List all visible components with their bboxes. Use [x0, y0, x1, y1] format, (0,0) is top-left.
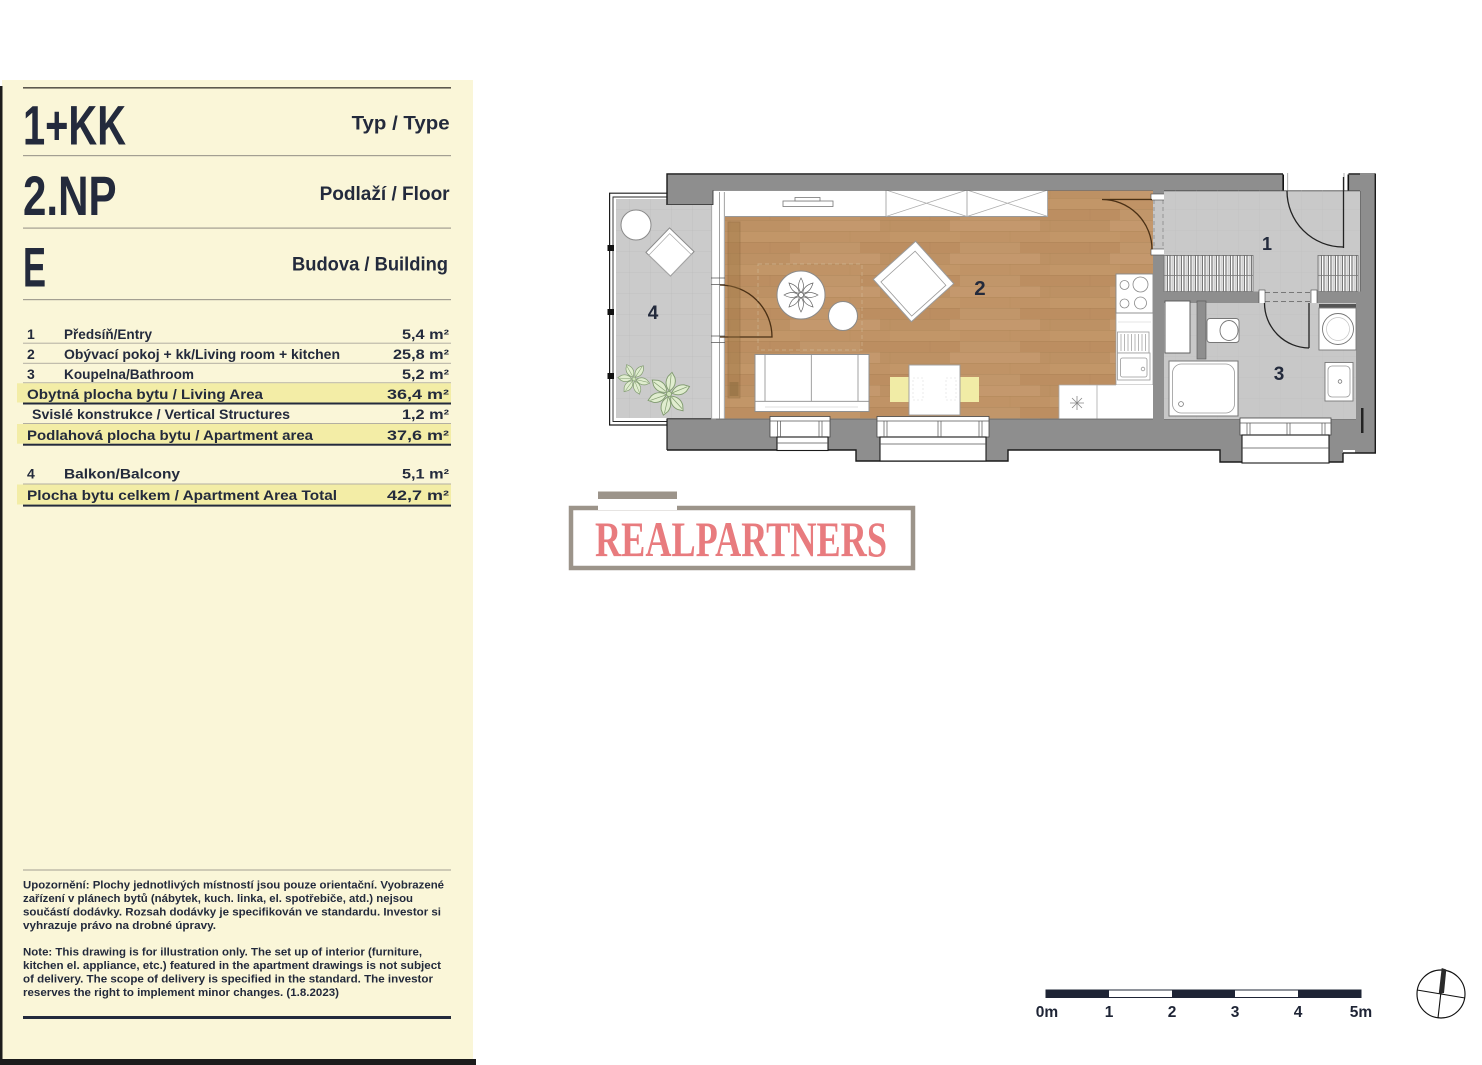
svg-text:1: 1	[1105, 1004, 1114, 1021]
svg-text:5m: 5m	[1350, 1004, 1372, 1021]
svg-text:Koupelna/Bathroom: Koupelna/Bathroom	[64, 366, 194, 382]
svg-text:36,4 m²: 36,4 m²	[387, 386, 449, 402]
svg-text:3: 3	[1231, 1004, 1240, 1021]
svg-text:2: 2	[27, 346, 35, 362]
svg-text:Podlahová plocha bytu / Apartm: Podlahová plocha bytu / Apartment area	[27, 427, 313, 443]
svg-text:4: 4	[648, 303, 659, 324]
svg-text:4: 4	[27, 466, 35, 482]
svg-text:Předsíň/Entry: Předsíň/Entry	[64, 326, 152, 342]
svg-text:reserves the right to implemen: reserves the right to implement minor ch…	[23, 987, 339, 999]
svg-text:Obývací pokoj + kk/Living room: Obývací pokoj + kk/Living room + kitchen	[64, 346, 340, 362]
svg-text:1+KK: 1+KK	[23, 95, 126, 157]
svg-text:42,7 m²: 42,7 m²	[387, 487, 449, 503]
svg-text:zařízení v plánech bytů (náby: zařízení v plánech bytů (nábytek, kuch. …	[23, 893, 413, 905]
svg-text:Obytná plocha bytu / Living Ar: Obytná plocha bytu / Living Area	[27, 386, 263, 402]
svg-text:Note: This drawing is for illu: Note: This drawing is for illustration o…	[23, 947, 422, 959]
svg-text:vyhrazuje právo na drobné úpra: vyhrazuje právo na drobné úpravy.	[23, 920, 216, 932]
svg-text:25,8 m²: 25,8 m²	[393, 346, 449, 362]
svg-text:5,4 m²: 5,4 m²	[402, 326, 449, 342]
svg-text:1,2 m²: 1,2 m²	[402, 406, 449, 422]
svg-text:Upozornění: Plochy jednotlivýc: Upozornění: Plochy jednotlivých místnost…	[23, 880, 444, 892]
svg-text:Typ / Type: Typ / Type	[352, 114, 450, 135]
svg-text:REALPARTNERS: REALPARTNERS	[595, 511, 887, 567]
svg-text:0m: 0m	[1036, 1004, 1058, 1021]
svg-text:4: 4	[1294, 1004, 1303, 1021]
svg-text:součástí dodávky. Rozsah dodáv: součástí dodávky. Rozsah dodávky je spec…	[23, 907, 441, 919]
svg-text:Podlaží / Floor: Podlaží / Floor	[320, 184, 450, 205]
svg-text:5,1 m²: 5,1 m²	[402, 466, 449, 482]
svg-text:5,2 m²: 5,2 m²	[402, 366, 449, 382]
svg-text:1: 1	[27, 326, 35, 342]
svg-text:Budova / Building: Budova / Building	[292, 255, 448, 276]
svg-text:3: 3	[27, 366, 35, 382]
svg-text:37,6 m²: 37,6 m²	[387, 427, 449, 443]
svg-text:2: 2	[974, 277, 985, 300]
svg-text:Svislé konstrukce / Vertical S: Svislé konstrukce / Vertical Structures	[32, 406, 290, 422]
svg-text:Balkon/Balcony: Balkon/Balcony	[64, 466, 180, 482]
svg-text:1: 1	[1262, 234, 1272, 254]
svg-text:Plocha bytu celkem / Apartment: Plocha bytu celkem / Apartment Area Tota…	[27, 487, 337, 503]
svg-text:3: 3	[1274, 364, 1285, 385]
svg-text:2: 2	[1168, 1004, 1177, 1021]
svg-text:E: E	[23, 237, 46, 299]
svg-text:kitchen el. appliance, etc.) f: kitchen el. appliance, etc.) featured in…	[23, 960, 441, 972]
svg-text:of delivery. The scope of deli: of delivery. The scope of delivery is sp…	[23, 974, 434, 986]
svg-text:2.NP: 2.NP	[23, 165, 117, 227]
